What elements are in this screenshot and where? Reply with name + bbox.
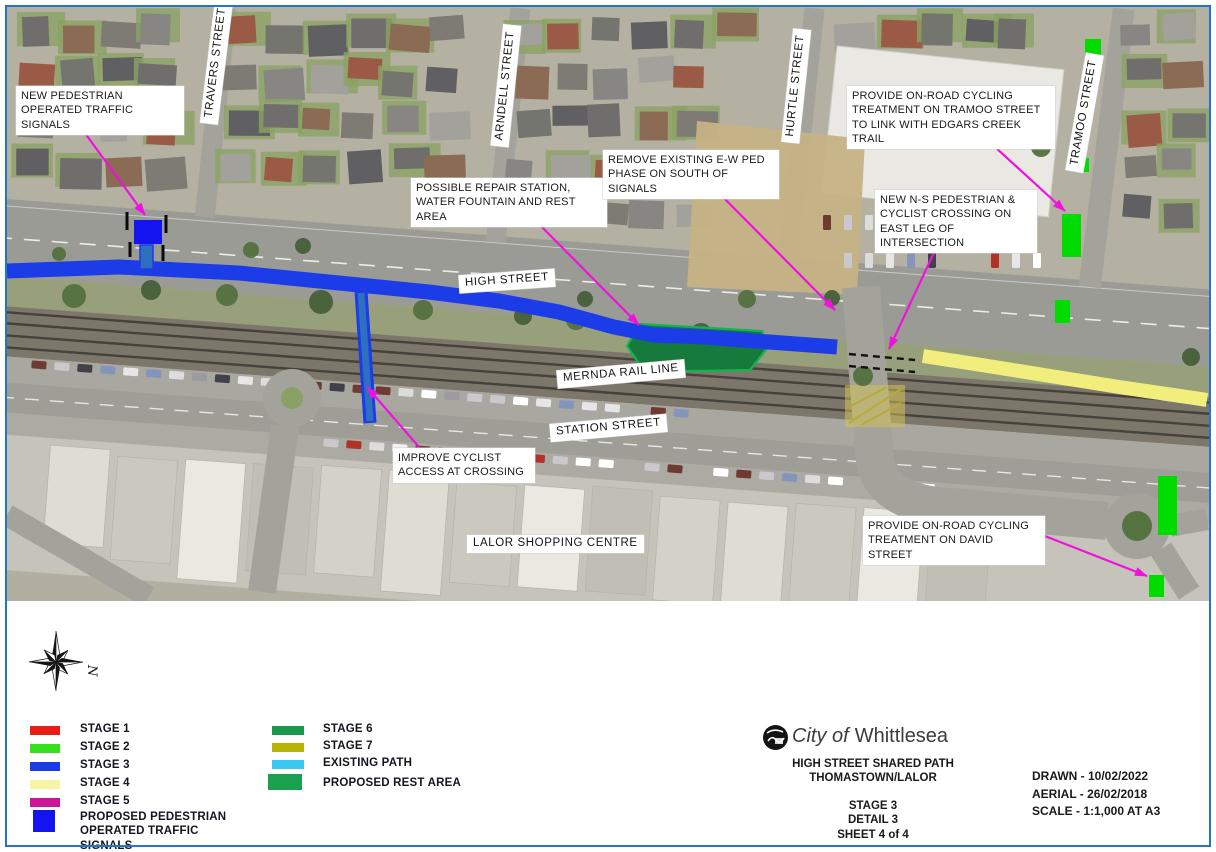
callout-repair-station: POSSIBLE REPAIR STATION, WATER FOUNTAIN … (411, 178, 607, 227)
org-name: City ofWhittlesea (792, 724, 948, 748)
legend-swatch-stage2 (30, 744, 60, 753)
callout-new-ped-signals: NEW PEDESTRIAN OPERATED TRAFFIC SIGNALS (16, 86, 184, 135)
stage-label: STAGE 3 (763, 799, 983, 813)
drawn-date: DRAWN - 10/02/2022 (1032, 769, 1160, 785)
legend-swatch-rest-area (268, 774, 302, 790)
scale-note: SCALE - 1:1,000 AT A3 (1032, 804, 1160, 820)
legend-swatch-stage5 (30, 798, 60, 807)
dates-block: DRAWN - 10/02/2022 AERIAL - 26/02/2018 S… (1032, 769, 1160, 822)
callout-tramoo-cycling: PROVIDE ON-ROAD CYCLING TREATMENT ON TRA… (847, 86, 1055, 149)
legend-label-stage1: STAGE 1 (80, 722, 130, 736)
project-title-line2: THOMASTOWN/LALOR (763, 771, 983, 785)
org-title: Whittlesea (855, 725, 948, 747)
north-arrow: N (16, 616, 126, 708)
north-letter: N (84, 664, 99, 677)
project-block: HIGH STREET SHARED PATH THOMASTOWN/LALOR… (763, 757, 983, 842)
detail-label: DETAIL 3 (763, 813, 983, 827)
legend-swatch-stage1 (30, 726, 60, 735)
legend-label-stage3: STAGE 3 (80, 758, 130, 772)
aerial-map: NEW PEDESTRIAN OPERATED TRAFFIC SIGNALS … (7, 7, 1209, 601)
vacant-lot (687, 121, 865, 295)
callout-remove-ew-ped: REMOVE EXISTING E-W PED PHASE ON SOUTH O… (603, 150, 779, 199)
legend-label-rest-area: PROPOSED REST AREA (323, 776, 461, 790)
legend-label-stage6: STAGE 6 (323, 722, 373, 736)
legend-label-stage5: STAGE 5 (80, 794, 130, 808)
council-logo (762, 724, 789, 751)
legend-swatch-stage7 (272, 743, 304, 752)
sheet-label: SHEET 4 of 4 (763, 828, 983, 842)
legend-label-stage2: STAGE 2 (80, 740, 130, 754)
legend-swatch-stage6 (272, 726, 304, 735)
legend-swatch-stage3 (30, 762, 60, 771)
legend-label-ped-signals: PROPOSED PEDESTRIAN OPERATED TRAFFIC SIG… (80, 810, 250, 852)
plan-sheet: NEW PEDESTRIAN OPERATED TRAFFIC SIGNALS … (0, 0, 1216, 852)
callout-ns-crossing: NEW N-S PEDESTRIAN & CYCLIST CROSSING ON… (875, 190, 1037, 253)
project-title-line1: HIGH STREET SHARED PATH (763, 757, 983, 771)
callout-david-st-cycling: PROVIDE ON-ROAD CYCLING TREATMENT ON DAV… (863, 516, 1045, 565)
legend-swatch-ped-signals (33, 810, 55, 832)
legend-label-stage7: STAGE 7 (323, 739, 373, 753)
legend-label-stage4: STAGE 4 (80, 776, 130, 790)
legend-swatch-stage4 (30, 780, 60, 789)
legend-swatch-existing-path (272, 760, 304, 769)
aerial-date: AERIAL - 26/02/2018 (1032, 787, 1160, 803)
label-lalor-shopping-centre: LALOR SHOPPING CENTRE (467, 535, 644, 553)
org-prefix: City of (792, 725, 849, 747)
callout-improve-access: IMPROVE CYCLIST ACCESS AT CROSSING (393, 448, 535, 483)
legend-label-existing-path: EXISTING PATH (323, 756, 412, 770)
